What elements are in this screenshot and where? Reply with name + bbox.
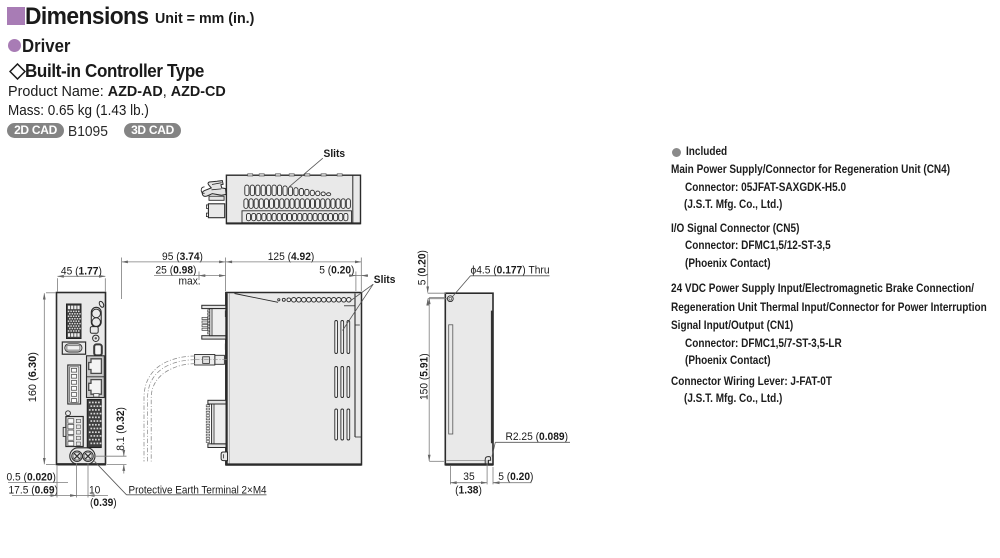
svg-text:(1.38): (1.38) xyxy=(455,484,482,496)
svg-text:Slits: Slits xyxy=(374,274,396,286)
svg-text:10: 10 xyxy=(89,484,100,496)
svg-text:0.5 (0.020): 0.5 (0.020) xyxy=(7,471,56,483)
svg-text:R2.25 (0.089): R2.25 (0.089) xyxy=(506,431,569,443)
svg-text:(0.39): (0.39) xyxy=(90,496,117,508)
svg-text:125 (4.92): 125 (4.92) xyxy=(268,251,315,263)
svg-text:5 (0.20): 5 (0.20) xyxy=(319,264,354,276)
svg-text:45 (1.77): 45 (1.77) xyxy=(61,265,102,277)
svg-text:8.1 (0.32): 8.1 (0.32) xyxy=(115,407,127,451)
svg-text:Slits: Slits xyxy=(324,148,346,160)
svg-text:35: 35 xyxy=(463,471,474,483)
svg-text:17.5 (0.69): 17.5 (0.69) xyxy=(9,484,58,496)
svg-text:max.: max. xyxy=(179,275,201,287)
svg-text:5 (0.20): 5 (0.20) xyxy=(416,250,428,285)
svg-text:ϕ4.5 (0.177) Thru: ϕ4.5 (0.177) Thru xyxy=(471,264,550,276)
svg-text:95 (3.74): 95 (3.74) xyxy=(162,251,203,263)
svg-text:Protective Earth Terminal 2×M4: Protective Earth Terminal 2×M4 xyxy=(129,485,267,497)
svg-text:5 (0.20): 5 (0.20) xyxy=(498,471,533,483)
svg-text:160 (6.30): 160 (6.30) xyxy=(27,352,39,402)
